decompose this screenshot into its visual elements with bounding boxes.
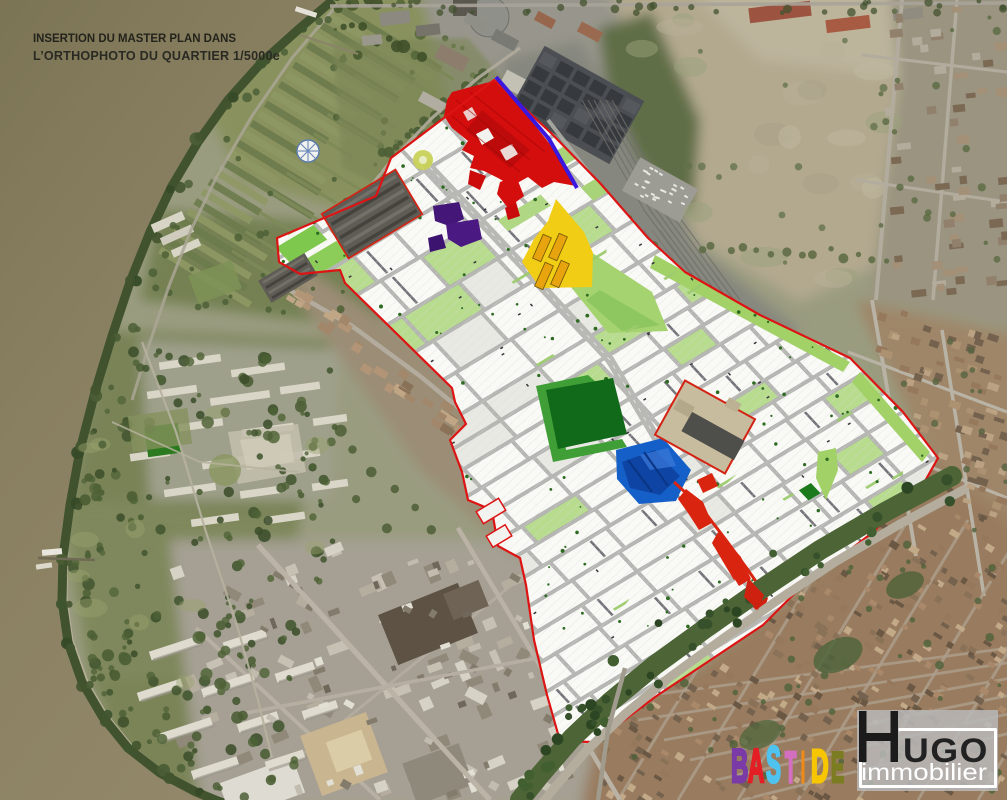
svg-text:T: T bbox=[785, 743, 797, 793]
svg-text:L’ORTHOPHOTO DU QUARTIER 1/500: L’ORTHOPHOTO DU QUARTIER 1/5000e bbox=[33, 49, 280, 63]
svg-text:S: S bbox=[766, 737, 781, 794]
svg-text:I: I bbox=[801, 742, 805, 792]
svg-text:immobilier: immobilier bbox=[861, 759, 987, 785]
svg-text:B: B bbox=[731, 739, 748, 792]
svg-text:E: E bbox=[831, 745, 844, 793]
svg-text:D: D bbox=[811, 741, 829, 792]
svg-text:A: A bbox=[748, 740, 764, 792]
svg-text:INSERTION DU MASTER PLAN DANS: INSERTION DU MASTER PLAN DANS bbox=[33, 31, 236, 45]
